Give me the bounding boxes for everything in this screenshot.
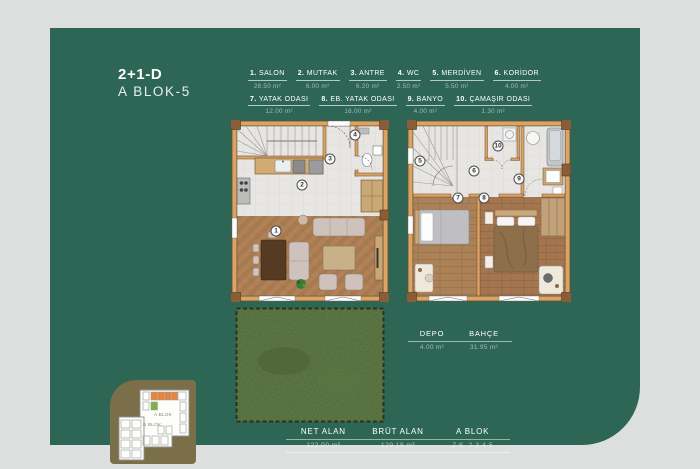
b-blok-shape xyxy=(119,417,144,460)
legend-item-wc: 4. WC 2.50 m² xyxy=(396,70,421,90)
depo-label: DEPO xyxy=(408,329,456,338)
garden-drawing xyxy=(234,306,386,424)
legend-item-yatak-odasi: 7. YATAK ODASI 12.00 m² xyxy=(248,96,310,116)
room-marker-yatak-odasi: 7 xyxy=(453,193,464,204)
desk-chair-7 xyxy=(425,274,433,282)
toilet xyxy=(362,154,372,167)
bathroom-wall xyxy=(521,126,524,196)
room-marker-wc: 4 xyxy=(350,130,361,141)
legend-row-1: 1. SALON 28.50 m² 2. MUTFAK 6.00 m² 3. A… xyxy=(248,70,588,90)
side-table xyxy=(298,215,308,225)
site-minimap-drawing: A BLOK B BLOK xyxy=(110,380,196,464)
armchair-1 xyxy=(319,274,337,290)
nightstand-2 xyxy=(485,256,493,268)
minimap-a-blok-label: A BLOK xyxy=(154,412,173,417)
legend-item-salon: 1. SALON 28.50 m² xyxy=(248,70,287,90)
room-marker-eb-yatak-odasi: 8 xyxy=(479,193,490,204)
blok-label: A BLOK xyxy=(435,427,510,436)
entrance-door-gap xyxy=(328,121,350,126)
room-marker-mutfak: 2 xyxy=(297,180,308,191)
extras-block: DEPO BAHÇE 4.00 m² 31.95 m² xyxy=(408,329,512,351)
room-marker-salon: 1 xyxy=(271,226,282,237)
bedroom-separator-wall xyxy=(477,197,480,296)
upper-floor-plan: 5 6 7 8 9 10 xyxy=(407,120,571,302)
room-marker-antre: 3 xyxy=(325,154,336,165)
brut-alan-value: 129.18 m² xyxy=(361,442,436,449)
minimap-b-blok-label: B BLOK xyxy=(143,422,162,427)
desk-chair-8 xyxy=(544,274,553,283)
net-alan-value: 122.00 m² xyxy=(286,442,361,449)
pillow xyxy=(421,213,433,241)
room-marker-koridor: 6 xyxy=(469,166,480,177)
room-marker-camasir-odasi: 10 xyxy=(493,141,504,152)
legend-item-koridor: 6. KORİDOR 4.00 m² xyxy=(493,70,541,90)
main-sofa xyxy=(313,218,365,236)
legend-item-banyo: 9. BANYO 4.00 m² xyxy=(406,96,446,116)
legend-item-merdiven: 5. MERDİVEN 5.50 m² xyxy=(430,70,483,90)
headboard xyxy=(495,210,537,216)
shower-tray xyxy=(546,171,560,183)
stove xyxy=(237,178,250,204)
room-marker-merdiven: 5 xyxy=(415,156,426,167)
wardrobe xyxy=(541,198,565,236)
bath-basin xyxy=(527,132,540,145)
brut-alan-label: BRÜT ALAN xyxy=(361,427,436,436)
unit-type-title: 2+1-D xyxy=(118,66,191,83)
tv xyxy=(377,248,379,268)
net-alan-label: NET ALAN xyxy=(286,427,361,436)
page-title: 2+1-D A BLOK-5 xyxy=(118,66,191,101)
ground-floor-drawing xyxy=(231,120,389,302)
selected-unit xyxy=(151,402,158,410)
armchair-2 xyxy=(345,274,363,290)
plant xyxy=(296,279,306,289)
garden-area xyxy=(234,306,386,424)
floor-plan-page: 2+1-D A BLOK-5 1. SALON 28.50 m² 2. MUTF… xyxy=(0,0,700,466)
blok-value: Z.K. 2-3-4-5 xyxy=(435,442,510,449)
wc-sink xyxy=(373,146,382,155)
upper-floor-drawing xyxy=(407,120,571,302)
legend-item-eb-yatak-odasi: 8. EB. YATAK ODASI 16.00 m² xyxy=(319,96,396,116)
depo-area: 4.00 m² xyxy=(408,344,456,351)
legend-item-antre: 3. ANTRE 6.20 m² xyxy=(349,70,387,90)
area-summary: NET ALAN BRÜT ALAN A BLOK 122.00 m² 129.… xyxy=(286,427,510,453)
legend-item-mutfak: 2. MUTFAK 6.00 m² xyxy=(296,70,340,90)
bahce-area: 31.95 m² xyxy=(456,344,512,351)
coffee-table xyxy=(323,246,355,270)
washing-machine xyxy=(503,128,516,141)
legend-item-camasir-odasi: 10. ÇAMAŞIR ODASI 1.30 m² xyxy=(454,96,532,116)
built-in-closet xyxy=(361,180,383,212)
bahce-label: BAHÇE xyxy=(456,329,512,338)
fridge xyxy=(309,160,323,174)
tv-unit xyxy=(375,236,383,280)
block-subtitle: A BLOK-5 xyxy=(118,83,191,101)
site-minimap: A BLOK B BLOK xyxy=(110,380,196,464)
room-marker-banyo: 9 xyxy=(514,174,525,185)
oven xyxy=(293,160,305,173)
legend-row-2: 7. YATAK ODASI 12.00 m² 8. EB. YATAK ODA… xyxy=(248,96,588,116)
kitchen-counter xyxy=(255,158,323,174)
plan-card: 2+1-D A BLOK-5 1. SALON 28.50 m² 2. MUTF… xyxy=(50,28,640,445)
dining-table xyxy=(261,240,286,280)
room-legend: 1. SALON 28.50 m² 2. MUTFAK 6.00 m² 3. A… xyxy=(248,70,588,115)
nightstand-1 xyxy=(485,212,493,224)
ground-floor-plan: 1 2 3 4 xyxy=(231,120,389,302)
